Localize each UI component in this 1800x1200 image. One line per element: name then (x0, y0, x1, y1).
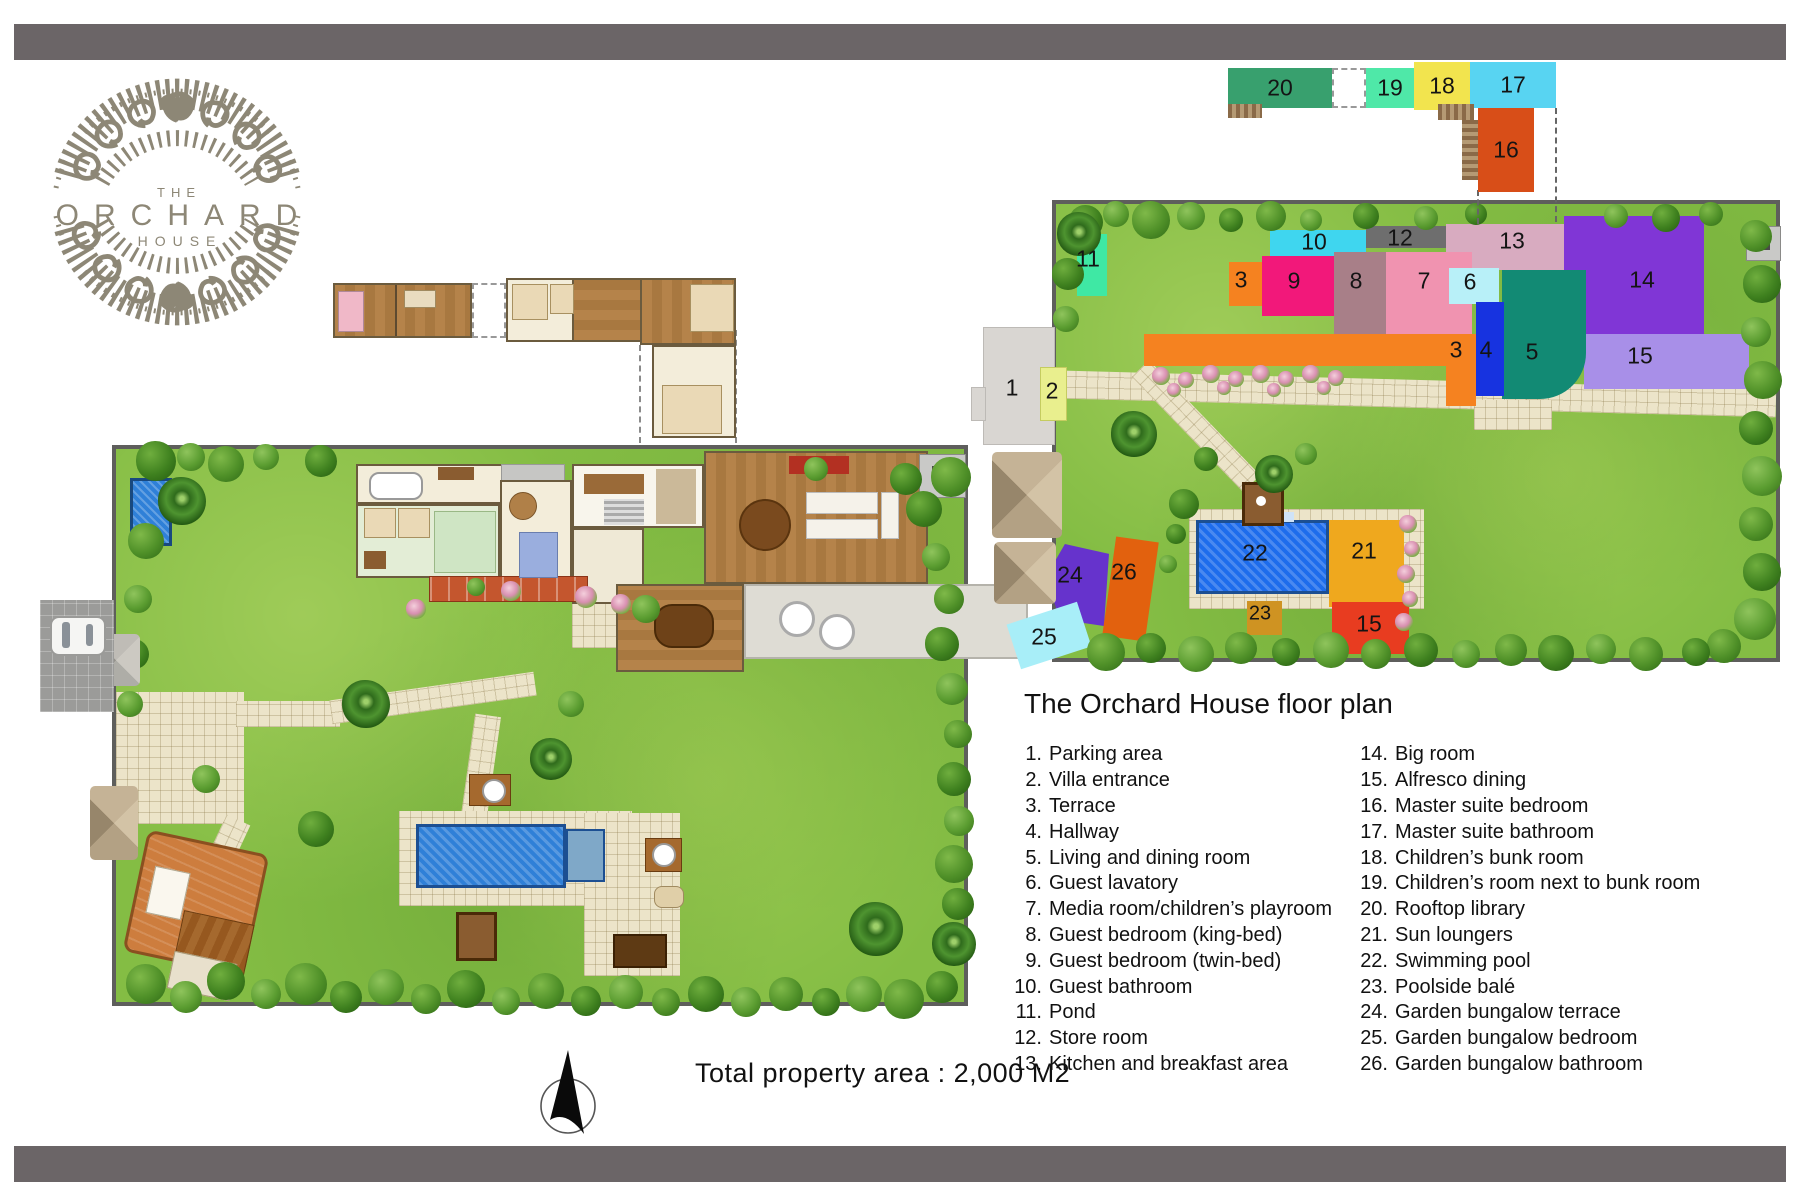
legend-item-number: 21. (1352, 924, 1388, 947)
room-marker-9: 9 (1288, 268, 1301, 295)
legend-item: 24.Garden bungalow terrace (1352, 1000, 1700, 1026)
tree-icon (1353, 203, 1379, 229)
bed-icon (519, 532, 558, 578)
top-frame-bar (14, 24, 1786, 60)
legend-item-label: Master suite bathroom (1395, 821, 1594, 844)
tree-icon (804, 457, 828, 481)
legend-item: 16.Master suite bedroom (1352, 794, 1700, 820)
legend-item: 7.Media room/children’s playroom (1006, 897, 1332, 923)
tree-icon (1742, 456, 1782, 496)
flower-bush-icon (501, 581, 521, 601)
tree-icon (1452, 640, 1480, 668)
terrace-block-3-vertical (1446, 364, 1476, 406)
legend-item-label: Rooftop library (1395, 898, 1525, 921)
legend-column-2: 14.Big room15.Alfresco dining16.Master s… (1352, 742, 1700, 1077)
tree-icon (935, 845, 973, 883)
chair-icon (654, 886, 684, 908)
bed-icon (512, 284, 548, 320)
legend-item-number: 23. (1352, 976, 1388, 999)
room-marker-15a: 15 (1627, 343, 1653, 370)
legend-item-number: 5. (1006, 847, 1042, 870)
legend-item-number: 20. (1352, 898, 1388, 921)
flower-bush-icon (1217, 381, 1231, 395)
legend-item-label: Garden bungalow terrace (1395, 1001, 1621, 1024)
palm-tree-icon (342, 680, 390, 728)
tree-icon (769, 977, 803, 1011)
poolside-bale-left (456, 912, 497, 961)
flower-bush-icon (1395, 613, 1413, 631)
legend-item-label: Children’s bunk room (1395, 847, 1584, 870)
legend-item: 8.Guest bedroom (king-bed) (1006, 923, 1332, 949)
tree-icon (1272, 638, 1300, 666)
stairs-icon (1462, 120, 1478, 180)
legend-item-label: Media room/children’s playroom (1049, 898, 1332, 921)
legend-item-number: 22. (1352, 950, 1388, 973)
room-marker-23: 23 (1249, 603, 1271, 626)
tree-icon (926, 971, 958, 1003)
parasol-icon (652, 843, 676, 867)
room-marker-22: 22 (1242, 540, 1268, 567)
room-marker-15b: 15 (1356, 611, 1382, 638)
room-marker-2: 2 (1046, 378, 1059, 405)
bungalow-bathroom-block-26 (1102, 536, 1158, 641)
tree-icon (1103, 201, 1129, 227)
bottom-frame-bar (14, 1146, 1786, 1182)
dining-table-icon (739, 499, 791, 551)
tree-icon (298, 811, 334, 847)
legend-item-number: 9. (1006, 950, 1042, 973)
legend-item-label: Garden bungalow bathroom (1395, 1053, 1643, 1076)
legend-item-label: Living and dining room (1049, 847, 1250, 870)
tree-icon (126, 964, 166, 1004)
legend-item-number: 18. (1352, 847, 1388, 870)
room-marker-10: 10 (1301, 229, 1327, 256)
flower-bush-icon (1152, 367, 1170, 385)
logo-orchard-text: ORCHARD (56, 199, 308, 232)
legend-item: 11.Pond (1006, 1000, 1332, 1026)
flower-bush-icon (1202, 365, 1220, 383)
flower-bush-icon (1178, 372, 1194, 388)
legend-item-number: 4. (1006, 821, 1042, 844)
tree-icon (1707, 629, 1741, 663)
legend-item-number: 8. (1006, 924, 1042, 947)
tree-icon (890, 463, 922, 495)
logo-ornament-icon: THE ORCHARD HOUSE (46, 64, 308, 340)
tree-icon (1744, 361, 1782, 399)
tree-icon (1739, 507, 1773, 541)
bathtub-icon (369, 472, 423, 500)
legend-item-number: 25. (1352, 1027, 1388, 1050)
flower-bush-icon (1404, 541, 1420, 557)
garden-path (236, 701, 340, 727)
bed-icon (364, 508, 396, 538)
flower-bush-icon (1167, 383, 1181, 397)
tree-icon (688, 976, 724, 1012)
legend-item: 26.Garden bungalow bathroom (1352, 1052, 1700, 1078)
legend-item-number: 26. (1352, 1053, 1388, 1076)
tree-icon (1743, 265, 1781, 303)
tree-icon (1699, 202, 1723, 226)
room-marker-21: 21 (1351, 538, 1377, 565)
plan-title: The Orchard House floor plan (1024, 688, 1393, 720)
legend-item-label: Pond (1049, 1001, 1096, 1024)
room-marker-20: 20 (1267, 75, 1293, 102)
tree-icon (571, 986, 601, 1016)
tree-icon (208, 446, 244, 482)
tree-icon (937, 762, 971, 796)
tree-icon (207, 962, 245, 1000)
car-icon (50, 616, 106, 656)
legend-item-label: Swimming pool (1395, 950, 1531, 973)
living-dining-block-5 (1502, 270, 1586, 399)
legend-item-number: 15. (1352, 769, 1388, 792)
tree-icon (128, 523, 164, 559)
parasol-table-icon (819, 614, 855, 650)
tree-icon (1538, 635, 1574, 671)
upper-room-c (572, 278, 645, 342)
room-marker-7: 7 (1418, 268, 1431, 295)
legend-item-number: 12. (1006, 1027, 1042, 1050)
legend-item-label: Master suite bedroom (1395, 795, 1588, 818)
legend-item-label: Guest lavatory (1049, 872, 1178, 895)
counter-icon (584, 474, 644, 494)
tree-icon (1087, 633, 1125, 671)
room-marker-3a: 3 (1235, 267, 1248, 294)
room-marker-5: 5 (1526, 339, 1539, 366)
legend-item-label: Garden bungalow bedroom (1395, 1027, 1637, 1050)
tree-icon (1682, 638, 1710, 666)
flower-bush-icon (406, 599, 426, 619)
pool-spa-section (566, 829, 605, 882)
logo-house-text: HOUSE (138, 233, 223, 249)
tree-icon (253, 444, 279, 470)
tree-icon (944, 720, 972, 748)
tree-icon (1629, 637, 1663, 671)
deck-dining-table-icon (654, 604, 714, 648)
room-marker-25: 25 (1031, 624, 1057, 651)
flower-bush-icon (611, 594, 631, 614)
rug-icon (434, 511, 496, 573)
tree-icon (1741, 317, 1771, 347)
tree-icon (812, 988, 840, 1016)
legend-item-label: Children’s room next to bunk room (1395, 872, 1700, 895)
legend-item: 15.Alfresco dining (1352, 768, 1700, 794)
legend-item-label: Guest bedroom (king-bed) (1049, 924, 1282, 947)
sofa-icon (806, 492, 878, 514)
legend-item: 12.Store room (1006, 1026, 1332, 1052)
tree-icon (330, 981, 362, 1013)
tree-icon (1178, 636, 1214, 672)
tree-icon (1495, 634, 1527, 666)
tree-icon (1404, 633, 1438, 667)
floor-plan-page: THE ORCHARD HOUSE (0, 0, 1800, 1200)
north-arrow-icon (538, 1048, 608, 1140)
palm-tree-icon (932, 922, 976, 966)
terrace-block-3 (1144, 334, 1476, 366)
tree-icon (170, 981, 202, 1013)
legend-item-label: Sun loungers (1395, 924, 1513, 947)
bed-icon (690, 284, 734, 332)
room-marker-14: 14 (1629, 267, 1655, 294)
upper-strip-gap (472, 283, 506, 338)
legend-item: 1.Parking area (1006, 742, 1332, 768)
tree-icon (944, 806, 974, 836)
room-marker-18: 18 (1429, 73, 1455, 100)
parasol-icon (482, 779, 506, 803)
legend-item: 10.Guest bathroom (1006, 974, 1332, 1000)
legend-item-label: Store room (1049, 1027, 1148, 1050)
tree-icon (1465, 203, 1487, 225)
legend-item-label: Guest bedroom (twin-bed) (1049, 950, 1281, 973)
stairs-icon (1438, 104, 1474, 120)
wall-divider (395, 285, 397, 336)
palm-tree-icon (530, 738, 572, 780)
gate-roof-icon (994, 542, 1056, 604)
room-marker-4: 4 (1480, 337, 1493, 364)
legend-item: 17.Master suite bathroom (1352, 819, 1700, 845)
furniture-icon (404, 290, 436, 308)
room-marker-19: 19 (1377, 75, 1403, 102)
tree-icon (528, 973, 564, 1009)
tree-icon (731, 987, 761, 1017)
room-marker-24: 24 (1057, 562, 1083, 589)
tree-icon (124, 585, 152, 613)
tree-icon (1295, 443, 1317, 465)
palm-tree-icon (1255, 455, 1293, 493)
tree-icon (1739, 411, 1773, 445)
legend-item: 20.Rooftop library (1352, 897, 1700, 923)
flower-bush-icon (1397, 565, 1415, 583)
alfresco-dining-block-15 (1584, 334, 1749, 389)
legend-item-label: Hallway (1049, 821, 1119, 844)
tree-icon (1159, 555, 1177, 573)
tree-icon (942, 888, 974, 920)
legend-item-number: 10. (1006, 976, 1042, 999)
legend-item-number: 6. (1006, 872, 1042, 895)
counter-icon (656, 469, 696, 524)
flower-bush-icon (1267, 383, 1281, 397)
legend-item: 19.Children’s room next to bunk room (1352, 871, 1700, 897)
tree-icon (652, 988, 680, 1016)
room-marker-16: 16 (1493, 137, 1519, 164)
tree-icon (1734, 598, 1776, 640)
tree-icon (251, 979, 281, 1009)
guest-bedroom-king-block-8 (1334, 252, 1386, 338)
palm-tree-icon (849, 902, 903, 956)
parking-notch (971, 387, 986, 421)
legend-item: 22.Swimming pool (1352, 948, 1700, 974)
legend-item-label: Kitchen and breakfast area (1049, 1053, 1288, 1076)
tree-icon (1740, 220, 1772, 252)
tree-icon (1169, 489, 1199, 519)
projection-dash-line (639, 345, 641, 443)
flower-bush-icon (1402, 591, 1418, 607)
stairs-icon (1228, 104, 1262, 118)
tree-icon (1256, 201, 1286, 231)
legend-item-number: 1. (1006, 743, 1042, 766)
room-marker-6: 6 (1464, 269, 1477, 296)
tree-icon (368, 969, 404, 1005)
flower-bush-icon (1278, 371, 1294, 387)
legend-item: 3.Terrace (1006, 794, 1332, 820)
legend-item-label: Alfresco dining (1395, 769, 1526, 792)
outdoor-dining-table-icon (613, 934, 667, 968)
tree-icon (411, 984, 441, 1014)
gate-roof-icon (992, 452, 1062, 538)
legend-item: 6.Guest lavatory (1006, 871, 1332, 897)
tree-icon (117, 691, 143, 717)
sofa-icon (881, 492, 899, 539)
tree-icon (936, 673, 968, 705)
tree-icon (609, 975, 643, 1009)
legend-column-1: 1.Parking area2.Villa entrance3.Terrace4… (1006, 742, 1332, 1077)
main-garden-plan (112, 445, 968, 1006)
legend-item-label: Terrace (1049, 795, 1116, 818)
flower-bush-icon (1317, 381, 1331, 395)
tree-icon (1219, 208, 1243, 232)
projection-dash-line (1555, 108, 1557, 222)
bed-icon (338, 291, 364, 332)
palm-tree-icon (158, 477, 206, 525)
legend-item-label: Big room (1395, 743, 1475, 766)
tree-icon (925, 627, 959, 661)
tree-icon (1743, 553, 1781, 591)
palm-tree-icon (1111, 411, 1157, 457)
tree-icon (884, 979, 924, 1019)
room-marker-12: 12 (1387, 225, 1413, 252)
tree-icon (192, 765, 220, 793)
tree-icon (632, 595, 660, 623)
table-icon (509, 492, 537, 520)
legend-item: 4.Hallway (1006, 819, 1332, 845)
logo-the-text: THE (157, 185, 201, 200)
legend-item-label: Guest bathroom (1049, 976, 1192, 999)
tree-icon (1652, 204, 1680, 232)
tree-icon (1166, 524, 1186, 544)
tree-icon (1053, 306, 1079, 332)
legend-item: 23.Poolside balé (1352, 974, 1700, 1000)
tree-icon (305, 445, 337, 477)
legend-item: 25.Garden bungalow bedroom (1352, 1026, 1700, 1052)
schematic-garden-plan (1052, 200, 1780, 662)
tree-icon (1414, 206, 1438, 230)
tree-icon (558, 691, 584, 717)
legend-item-number: 24. (1352, 1001, 1388, 1024)
legend-item-label: Parking area (1049, 743, 1162, 766)
bale-kettle-icon (1256, 496, 1266, 506)
tree-icon (467, 578, 485, 596)
room-marker-17: 17 (1500, 72, 1526, 99)
vanity-icon (438, 467, 474, 480)
legend-item-number: 14. (1352, 743, 1388, 766)
tree-icon (1361, 639, 1391, 669)
legend-item: 9.Guest bedroom (twin-bed) (1006, 948, 1332, 974)
legend-item-number: 7. (1006, 898, 1042, 921)
legend-item: 14.Big room (1352, 742, 1700, 768)
total-area-text: Total property area : 2,000 M2 (695, 1058, 1070, 1089)
tree-icon (1604, 204, 1628, 228)
legend-item-number: 2. (1006, 769, 1042, 792)
stairs-icon (604, 499, 644, 525)
bed-icon (662, 385, 722, 434)
room-marker-26: 26 (1111, 559, 1137, 586)
tree-icon (906, 491, 942, 527)
room-marker-3b: 3 (1450, 337, 1463, 364)
tree-icon (1225, 632, 1257, 664)
desk-icon (364, 551, 386, 569)
room-marker-8: 8 (1350, 268, 1363, 295)
flower-bush-icon (575, 586, 597, 608)
legend-item-number: 3. (1006, 795, 1042, 818)
legend-item-label: Villa entrance (1049, 769, 1170, 792)
flower-bush-icon (1399, 515, 1417, 533)
legend-item-number: 17. (1352, 821, 1388, 844)
flower-bush-icon (1252, 365, 1270, 383)
room-marker-11: 11 (1076, 246, 1100, 273)
tree-icon (285, 963, 327, 1005)
tree-icon (931, 457, 971, 497)
legend-item: 2.Villa entrance (1006, 768, 1332, 794)
orchard-house-logo: THE ORCHARD HOUSE (46, 64, 308, 340)
legend-item-number: 16. (1352, 795, 1388, 818)
swimming-pool-left (416, 824, 566, 888)
legend-item: 18.Children’s bunk room (1352, 845, 1700, 871)
legend-item-number: 19. (1352, 872, 1388, 895)
terrace-tiles (1474, 400, 1552, 430)
house-steps (572, 604, 616, 648)
tree-icon (177, 443, 205, 471)
car-rear-window (86, 624, 93, 646)
parasol-table-icon (779, 601, 815, 637)
gate-roof-icon (90, 786, 138, 860)
legend-item: 21.Sun loungers (1352, 923, 1700, 949)
tree-icon (1177, 202, 1205, 230)
strip-gap (1332, 68, 1366, 108)
tree-icon (922, 543, 950, 571)
bed-icon (398, 508, 430, 538)
bed-icon (550, 284, 574, 314)
legend-item-label: Poolside balé (1395, 976, 1515, 999)
legend-item-number: 11. (1006, 1001, 1042, 1024)
tree-icon (1313, 632, 1349, 668)
projection-dash-line (1477, 190, 1479, 224)
flower-bush-icon (1328, 370, 1344, 386)
tree-icon (492, 987, 520, 1015)
tree-icon (447, 970, 485, 1008)
tree-icon (1586, 634, 1616, 664)
tree-icon (136, 441, 176, 481)
tree-icon (846, 976, 882, 1012)
room-marker-1: 1 (1006, 375, 1019, 402)
car-windshield (62, 622, 70, 648)
sofa-icon (806, 519, 878, 539)
room-marker-13: 13 (1499, 228, 1525, 255)
flower-bush-icon (1302, 365, 1320, 383)
tree-icon (1194, 447, 1218, 471)
tree-icon (934, 584, 964, 614)
tree-icon (1136, 633, 1166, 663)
legend-item: 5.Living and dining room (1006, 845, 1332, 871)
tree-icon (1132, 201, 1170, 239)
